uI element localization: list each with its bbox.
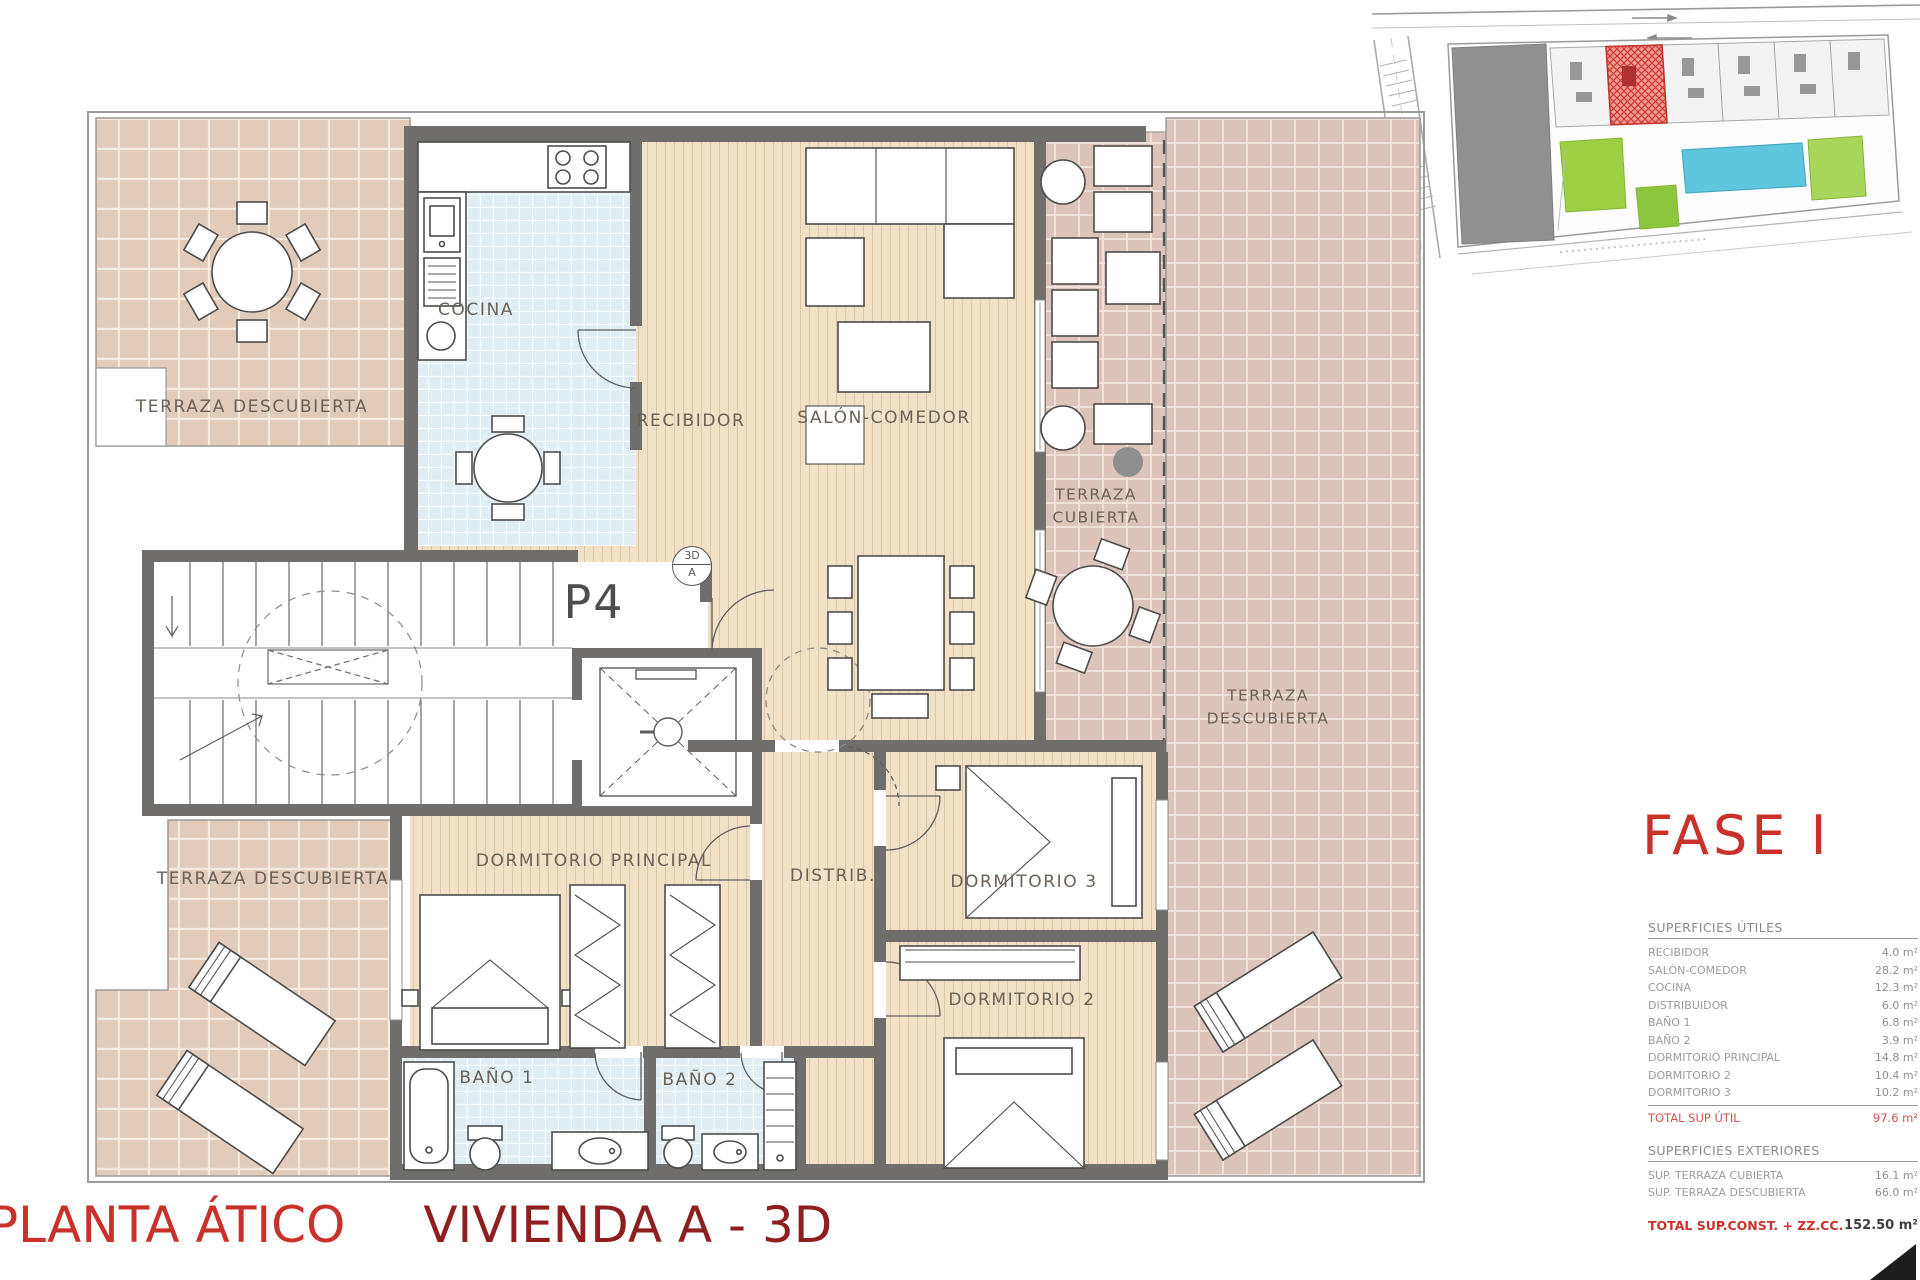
table-row: SALÓN-COMEDOR28.2 m²: [1648, 962, 1918, 980]
site-pool: [1682, 143, 1806, 193]
site-street-label-squiggle: [1560, 239, 1706, 252]
north-arrows-icon: [1632, 15, 1692, 41]
floorplan-drawing: [0, 0, 1920, 1280]
table-row: COCINA12.3 m²: [1648, 979, 1918, 997]
stamp-top: 3D: [673, 547, 711, 565]
site-garden: [1560, 138, 1626, 212]
stairwell-floor: [154, 562, 572, 808]
corner-mark: [1870, 1244, 1916, 1280]
label-terraza-cubierta-1: TERRAZA: [1055, 484, 1137, 507]
sheet-title: PLANTA ÁTICO VIVIENDA A - 3D: [0, 1196, 832, 1254]
label-terrace-top-left: TERRAZA DESCUBIERTA: [136, 397, 368, 417]
label-cocina: COCINA: [438, 300, 514, 320]
table-row: BAÑO 16.8 m²: [1648, 1014, 1918, 1032]
unit-label: P4: [563, 575, 624, 629]
table-row: DISTRIBUIDOR6.0 m²: [1648, 997, 1918, 1015]
label-dormitorio-principal: DORMITORIO PRINCIPAL: [476, 851, 712, 871]
label-bano-1: BAÑO 1: [459, 1068, 534, 1088]
table-row: BAÑO 23.9 m²: [1648, 1032, 1918, 1050]
page: TERRAZA DESCUBIERTA COCINA RECIBIDOR SAL…: [0, 0, 1920, 1280]
view-stamp: 3D A: [672, 546, 712, 586]
bed3: [936, 766, 1142, 918]
table-row: RECIBIDOR4.0 m²: [1648, 944, 1918, 962]
table-row: SUP. TERRAZA CUBIERTA16.1 m²: [1648, 1167, 1918, 1185]
grand-total-row: TOTAL SUP.CONST. + ZZ.CC. 152.50 m²: [1648, 1218, 1918, 1233]
site-gray-building: [1452, 44, 1554, 244]
apartment-plan: [88, 112, 1916, 1280]
stamp-bottom: A: [673, 565, 711, 581]
areas-exteriores-header: SUPERFICIES EXTERIORES: [1648, 1143, 1918, 1162]
sheet-title-vivienda: VIVIENDA A - 3D: [423, 1196, 832, 1254]
label-terraza-right-1: TERRAZA: [1227, 685, 1309, 708]
areas-utiles-header: SUPERFICIES ÚTILES: [1648, 920, 1918, 939]
sheet-title-planta: PLANTA ÁTICO: [0, 1196, 345, 1254]
site-highlighted-unit: [1606, 45, 1667, 125]
label-bano-2: BAÑO 2: [662, 1070, 737, 1090]
table-row: DORMITORIO PRINCIPAL14.8 m²: [1648, 1049, 1918, 1067]
label-recibidor: RECIBIDOR: [637, 411, 746, 431]
table-row: DORMITORIO 210.4 m²: [1648, 1067, 1918, 1085]
table-row: SUP. TERRAZA DESCUBIERTA66.0 m²: [1648, 1184, 1918, 1202]
label-dormitorio-2: DORMITORIO 2: [948, 990, 1095, 1010]
site-plan: [1372, 5, 1920, 274]
label-terrace-bottom-left: TERRAZA DESCUBIERTA: [157, 869, 389, 889]
label-salon-comedor: SALÓN-COMEDOR: [797, 408, 971, 428]
label-dormitorio-3: DORMITORIO 3: [950, 872, 1097, 892]
label-terraza-right-2: DESCUBIERTA: [1207, 708, 1330, 731]
elevator: [600, 668, 736, 796]
areas-table: SUPERFICIES ÚTILES RECIBIDOR4.0 m² SALÓN…: [1648, 920, 1918, 1233]
total-sup-util: TOTAL SUP ÚTIL97.6 m²: [1648, 1105, 1918, 1127]
table-row: DORMITORIO 310.2 m²: [1648, 1084, 1918, 1102]
plant-icon: [1113, 447, 1143, 477]
master-bed: [402, 895, 578, 1050]
phase-title: FASE I: [1642, 804, 1831, 867]
label-distribuidor: DISTRIB.: [790, 866, 876, 886]
label-terraza-cubierta-2: CUBIERTA: [1053, 507, 1140, 530]
